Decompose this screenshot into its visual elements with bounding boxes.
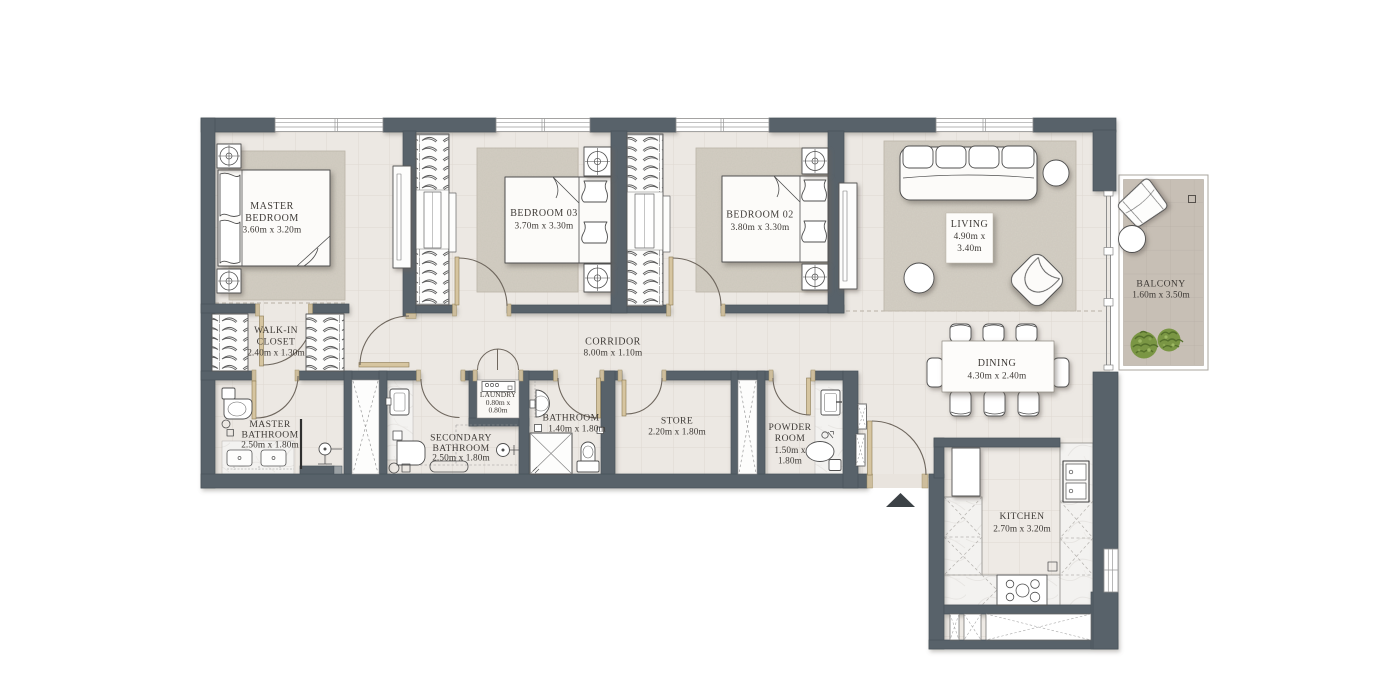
svg-text:BALCONY: BALCONY <box>1136 279 1185 290</box>
svg-text:4.30m x 2.40m: 4.30m x 2.40m <box>968 372 1027 382</box>
svg-text:2.50m x 1.80m: 2.50m x 1.80m <box>432 454 490 464</box>
svg-text:KITCHEN: KITCHEN <box>1000 511 1045 522</box>
svg-text:WALK-IN: WALK-IN <box>254 325 298 336</box>
svg-text:3.40m: 3.40m <box>957 244 982 254</box>
svg-text:BATHROOM: BATHROOM <box>542 413 599 424</box>
svg-text:BATHROOM: BATHROOM <box>432 443 489 454</box>
svg-text:1.60m x 3.50m: 1.60m x 3.50m <box>1132 291 1190 301</box>
svg-text:2.50m x 1.80m: 2.50m x 1.80m <box>241 441 299 451</box>
svg-text:BEDROOM: BEDROOM <box>245 213 299 224</box>
svg-text:BEDROOM 03: BEDROOM 03 <box>510 208 578 219</box>
svg-text:2.70m x 3.20m: 2.70m x 3.20m <box>993 525 1051 535</box>
svg-text:ROOM: ROOM <box>775 433 805 444</box>
svg-text:4.90m x: 4.90m x <box>954 232 986 242</box>
svg-text:CORRIDOR: CORRIDOR <box>585 337 641 348</box>
svg-text:STORE: STORE <box>661 416 693 427</box>
svg-text:8.00m x 1.10m: 8.00m x 1.10m <box>584 349 643 359</box>
svg-text:MASTER: MASTER <box>250 201 294 212</box>
svg-text:1.40m x 1.80m: 1.40m x 1.80m <box>548 425 606 435</box>
svg-text:DINING: DINING <box>978 358 1017 369</box>
svg-text:2.40m x 1.30m: 2.40m x 1.30m <box>247 349 305 359</box>
svg-text:POWDER: POWDER <box>769 422 812 433</box>
svg-text:BEDROOM 02: BEDROOM 02 <box>726 210 794 221</box>
svg-text:2.20m x 1.80m: 2.20m x 1.80m <box>648 428 706 438</box>
svg-text:LIVING: LIVING <box>951 219 988 230</box>
svg-text:1.80m: 1.80m <box>778 457 803 467</box>
svg-text:3.70m x 3.30m: 3.70m x 3.30m <box>515 222 574 232</box>
svg-text:MASTER: MASTER <box>249 419 291 430</box>
svg-text:0.80m: 0.80m <box>489 406 508 415</box>
svg-text:CLOSET: CLOSET <box>257 337 296 348</box>
svg-text:SECONDARY: SECONDARY <box>430 433 492 444</box>
svg-text:3.80m x 3.30m: 3.80m x 3.30m <box>731 223 790 233</box>
svg-text:3.60m x 3.20m: 3.60m x 3.20m <box>243 226 302 236</box>
svg-text:1.50m x: 1.50m x <box>774 446 805 456</box>
svg-text:BATHROOM: BATHROOM <box>241 430 298 441</box>
